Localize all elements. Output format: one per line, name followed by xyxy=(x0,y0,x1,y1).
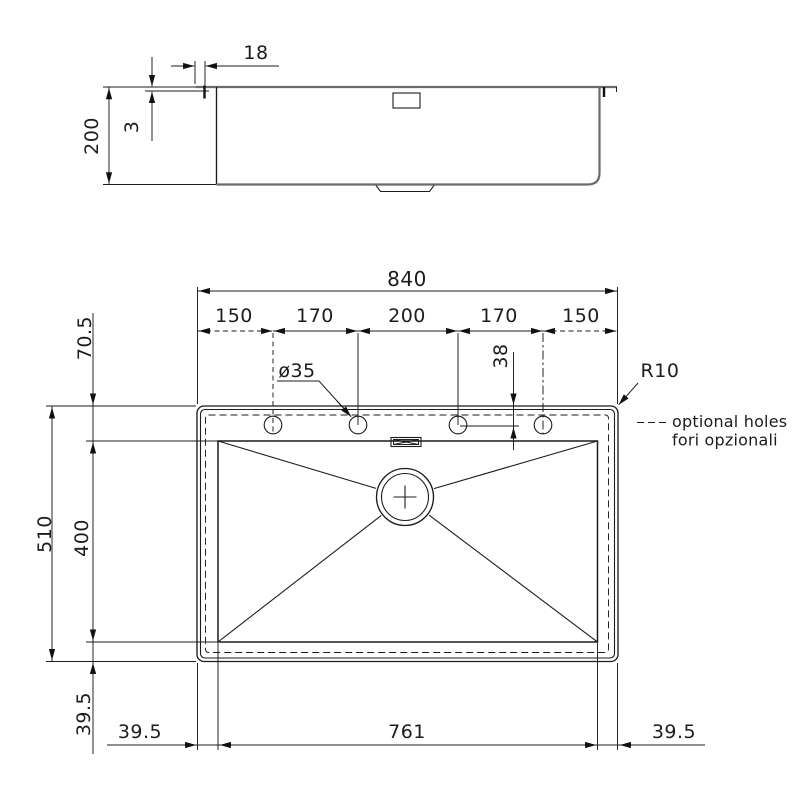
bowl-diagonal-top-right xyxy=(434,441,598,489)
hole-diameter-leader-arrow xyxy=(337,401,351,417)
dim-flange-width-label: 18 xyxy=(243,42,268,64)
bowl-diagonal-bottom-right xyxy=(429,515,598,642)
dim-overall-width-label: 840 xyxy=(387,267,427,291)
side-overflow-slot xyxy=(393,93,420,108)
dim-flange-thickness-label: 3 xyxy=(121,121,143,134)
dim-overall-depth-label: 510 xyxy=(34,515,56,553)
dim-pitch-4-label: 170 xyxy=(480,305,518,327)
side-right-wall xyxy=(588,87,600,185)
dim-pitch-5-label: 150 xyxy=(562,305,600,327)
side-drain-recess xyxy=(376,185,434,191)
bowl-outline xyxy=(218,441,598,642)
corner-radius-leader-arrow xyxy=(619,383,638,405)
bowl-diagonal-top-left xyxy=(218,441,376,488)
dim-hole-diameter-label: ø35 xyxy=(278,360,315,382)
optional-holes-zone-outline xyxy=(206,415,609,653)
hole-diameter-leader xyxy=(277,381,348,413)
plan-view: 840 150 170 200 170 150 510 xyxy=(34,267,787,754)
dim-bowl-width-label: 761 xyxy=(388,721,426,743)
technical-drawing-page: 200 18 3 xyxy=(0,0,798,799)
bowl-diagonal-bottom-left xyxy=(218,515,381,642)
dim-pitch-1-label: 150 xyxy=(215,305,253,327)
sink-technical-drawing: 200 18 3 xyxy=(0,0,798,799)
dim-top-to-bowl-label: 70.5 xyxy=(74,316,96,360)
dim-left-margin-label: 39.5 xyxy=(118,721,162,743)
note-optional-holes-en: optional holes xyxy=(672,412,787,431)
dim-corner-radius-label: R10 xyxy=(641,360,680,382)
dim-pitch-2-label: 170 xyxy=(296,305,334,327)
dim-right-margin-label: 39.5 xyxy=(652,721,696,743)
dim-depth-label: 200 xyxy=(81,117,103,155)
side-view: 200 18 3 xyxy=(81,42,617,192)
dim-bowl-to-bottom-label: 39.5 xyxy=(73,692,95,736)
dim-top-to-holes-label: 38 xyxy=(490,343,512,368)
dim-pitch-3-label: 200 xyxy=(388,305,426,327)
dim-bowl-depth-label: 400 xyxy=(71,519,93,557)
note-optional-holes-it: fori opzionali xyxy=(672,431,778,450)
